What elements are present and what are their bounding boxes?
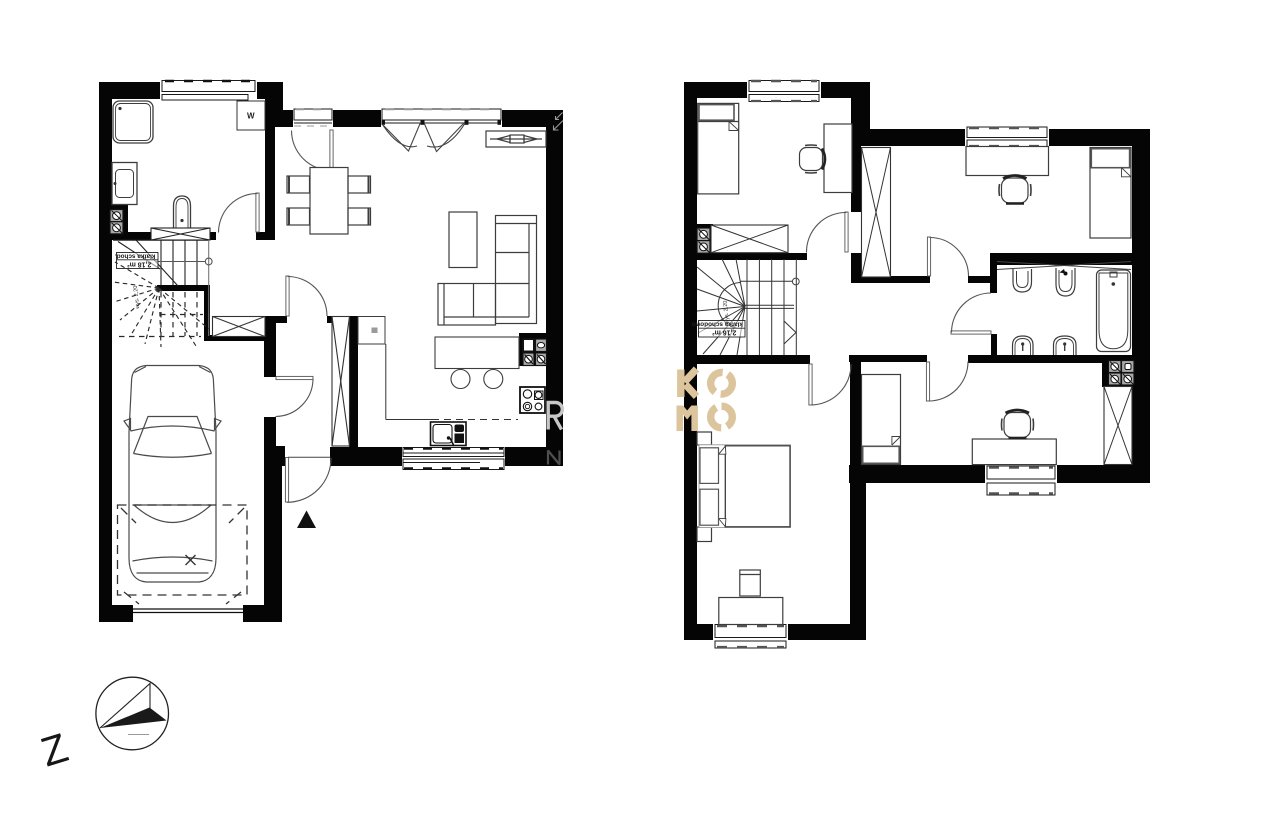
svg-text:klatka schodowa: klatka schodowa (691, 320, 743, 327)
svg-text:2,16 m²: 2,16 m² (712, 329, 737, 336)
svg-text:2,18 m²: 2,18 m² (127, 261, 152, 268)
svg-text:W: W (247, 112, 255, 121)
svg-text:klatka schod.: klatka schod. (115, 253, 156, 260)
